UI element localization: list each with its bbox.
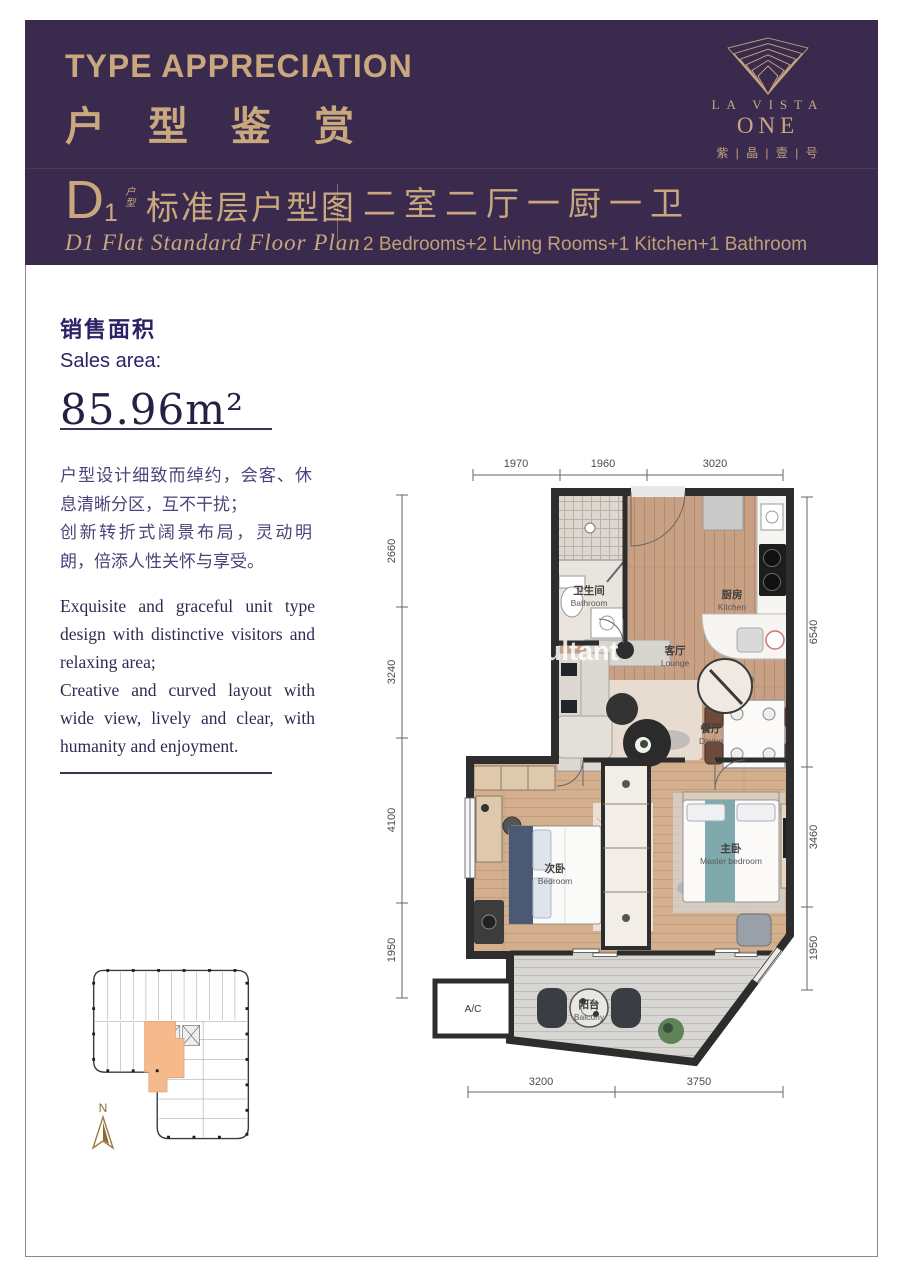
brochure-page: TYPE APPRECIATION 户型鉴赏 LA VISTA ONE 紫 | … <box>0 0 898 1280</box>
description-zh: 户型设计细致而绰约，会客、休息清晰分区，互不干扰； 创新转折式阔景布局，灵动明朗… <box>60 462 312 576</box>
dim-bottom-2: 3750 <box>687 1076 711 1088</box>
ac-platform: A/C <box>435 981 511 1036</box>
dim-right-3: 1950 <box>808 936 820 960</box>
label-dining-en: Dining <box>699 736 723 746</box>
header-vertical-divider <box>337 184 338 248</box>
description-en-1: Exquisite and graceful unit type design … <box>60 592 315 676</box>
brand-name-zh: 紫 | 晶 | 壹 | 号 <box>684 144 852 161</box>
dim-top-3: 3020 <box>703 458 727 470</box>
sales-area-label-zh: 销售面积 <box>60 312 244 344</box>
dim-top-2: 1960 <box>591 458 615 470</box>
unit-title-zh: 标准层户型图 <box>146 189 356 226</box>
floor-plan: 1970 1960 3020 2660 3240 4100 1950 6540 … <box>385 448 885 1113</box>
label-kitchen-en: Kitchen <box>718 602 747 612</box>
description-zh-1: 户型设计细致而绰约，会客、休息清晰分区，互不干扰； <box>60 462 312 519</box>
label-balcony-en: Balcony <box>574 1012 605 1022</box>
label-bedroom-zh: 次卧 <box>545 862 566 875</box>
header-title-zh: 户型鉴赏 <box>65 94 397 152</box>
label-bedroom-en: Bedroom <box>538 876 573 886</box>
label-dining-zh: 餐厅 <box>700 722 722 735</box>
dim-left-3: 4100 <box>386 808 398 832</box>
diamond-logo-icon <box>708 32 828 96</box>
sales-area-value: 85.96m² <box>60 385 244 434</box>
unit-title-en: D1 Flat Standard Floor Plan <box>65 230 361 256</box>
north-arrow: N <box>88 1100 118 1152</box>
unit-code-tag-bottom: 型 <box>125 198 135 209</box>
dim-left-1: 2660 <box>386 539 398 563</box>
label-lounge-en: Lounge <box>661 658 690 668</box>
brand-name-line2: ONE <box>684 113 852 139</box>
bedroom-window <box>465 798 475 878</box>
dim-top-1: 1970 <box>504 458 528 470</box>
brand-name-line1: LA VISTA <box>684 97 852 113</box>
unit-layout-en: 2 Bedrooms+2 Living Rooms+1 Kitchen+1 Ba… <box>363 234 807 256</box>
sales-area-block: 销售面积 Sales area: 85.96m² <box>60 312 244 434</box>
divider-line-bottom <box>60 772 272 774</box>
dim-bottom-1: 3200 <box>529 1076 553 1088</box>
dim-left-4: 1950 <box>386 938 398 962</box>
unit-code-line: D1 户 型 标准层户型图 <box>65 173 361 227</box>
dim-right-1: 6540 <box>808 620 820 644</box>
unit-code: D <box>65 170 104 230</box>
unit-title-row: D1 户 型 标准层户型图 D1 Flat Standard Floor Pla… <box>25 168 878 266</box>
divider-line-top <box>60 428 272 430</box>
unit-layout: 二室二厅一厨一卫 2 Bedrooms+2 Living Rooms+1 Kit… <box>363 177 807 256</box>
label-kitchen-zh: 厨房 <box>722 588 743 601</box>
brand-logo: LA VISTA ONE 紫 | 晶 | 壹 | 号 <box>684 32 852 161</box>
label-bathroom-en: Bathroom <box>571 598 608 608</box>
dim-right-2: 3460 <box>808 825 820 849</box>
description-en: Exquisite and graceful unit type design … <box>60 592 315 760</box>
description-en-2: Creative and curved layout with wide vie… <box>60 676 315 760</box>
unit-code-tag-top: 户 <box>125 187 135 198</box>
sales-area-label-en: Sales area: <box>60 350 244 373</box>
label-master-en: Master bedroom <box>700 856 762 866</box>
closet <box>603 764 649 948</box>
ac-label: A/C <box>465 1004 482 1015</box>
header-title-en: TYPE APPRECIATION <box>65 48 413 85</box>
north-label: N <box>99 1101 108 1115</box>
description-zh-2: 创新转折式阔景布局，灵动明朗，倍添人性关怀与享受。 <box>60 519 312 576</box>
unit-code-sub: 1 <box>104 199 118 227</box>
unit-code-tag: 户 型 <box>125 187 135 209</box>
header: TYPE APPRECIATION 户型鉴赏 LA VISTA ONE 紫 | … <box>25 20 878 265</box>
unit-layout-zh: 二室二厅一厨一卫 <box>363 177 807 225</box>
unit-title-left: D1 户 型 标准层户型图 D1 Flat Standard Floor Pla… <box>65 173 361 256</box>
label-master-zh: 主卧 <box>721 842 742 855</box>
dim-left-2: 3240 <box>386 660 398 684</box>
watermark-text: ultant <box>545 636 619 666</box>
label-bathroom-zh: 卫生间 <box>573 584 605 597</box>
label-lounge-zh: 客厅 <box>664 644 686 657</box>
label-balcony-zh: 阳台 <box>579 998 600 1011</box>
